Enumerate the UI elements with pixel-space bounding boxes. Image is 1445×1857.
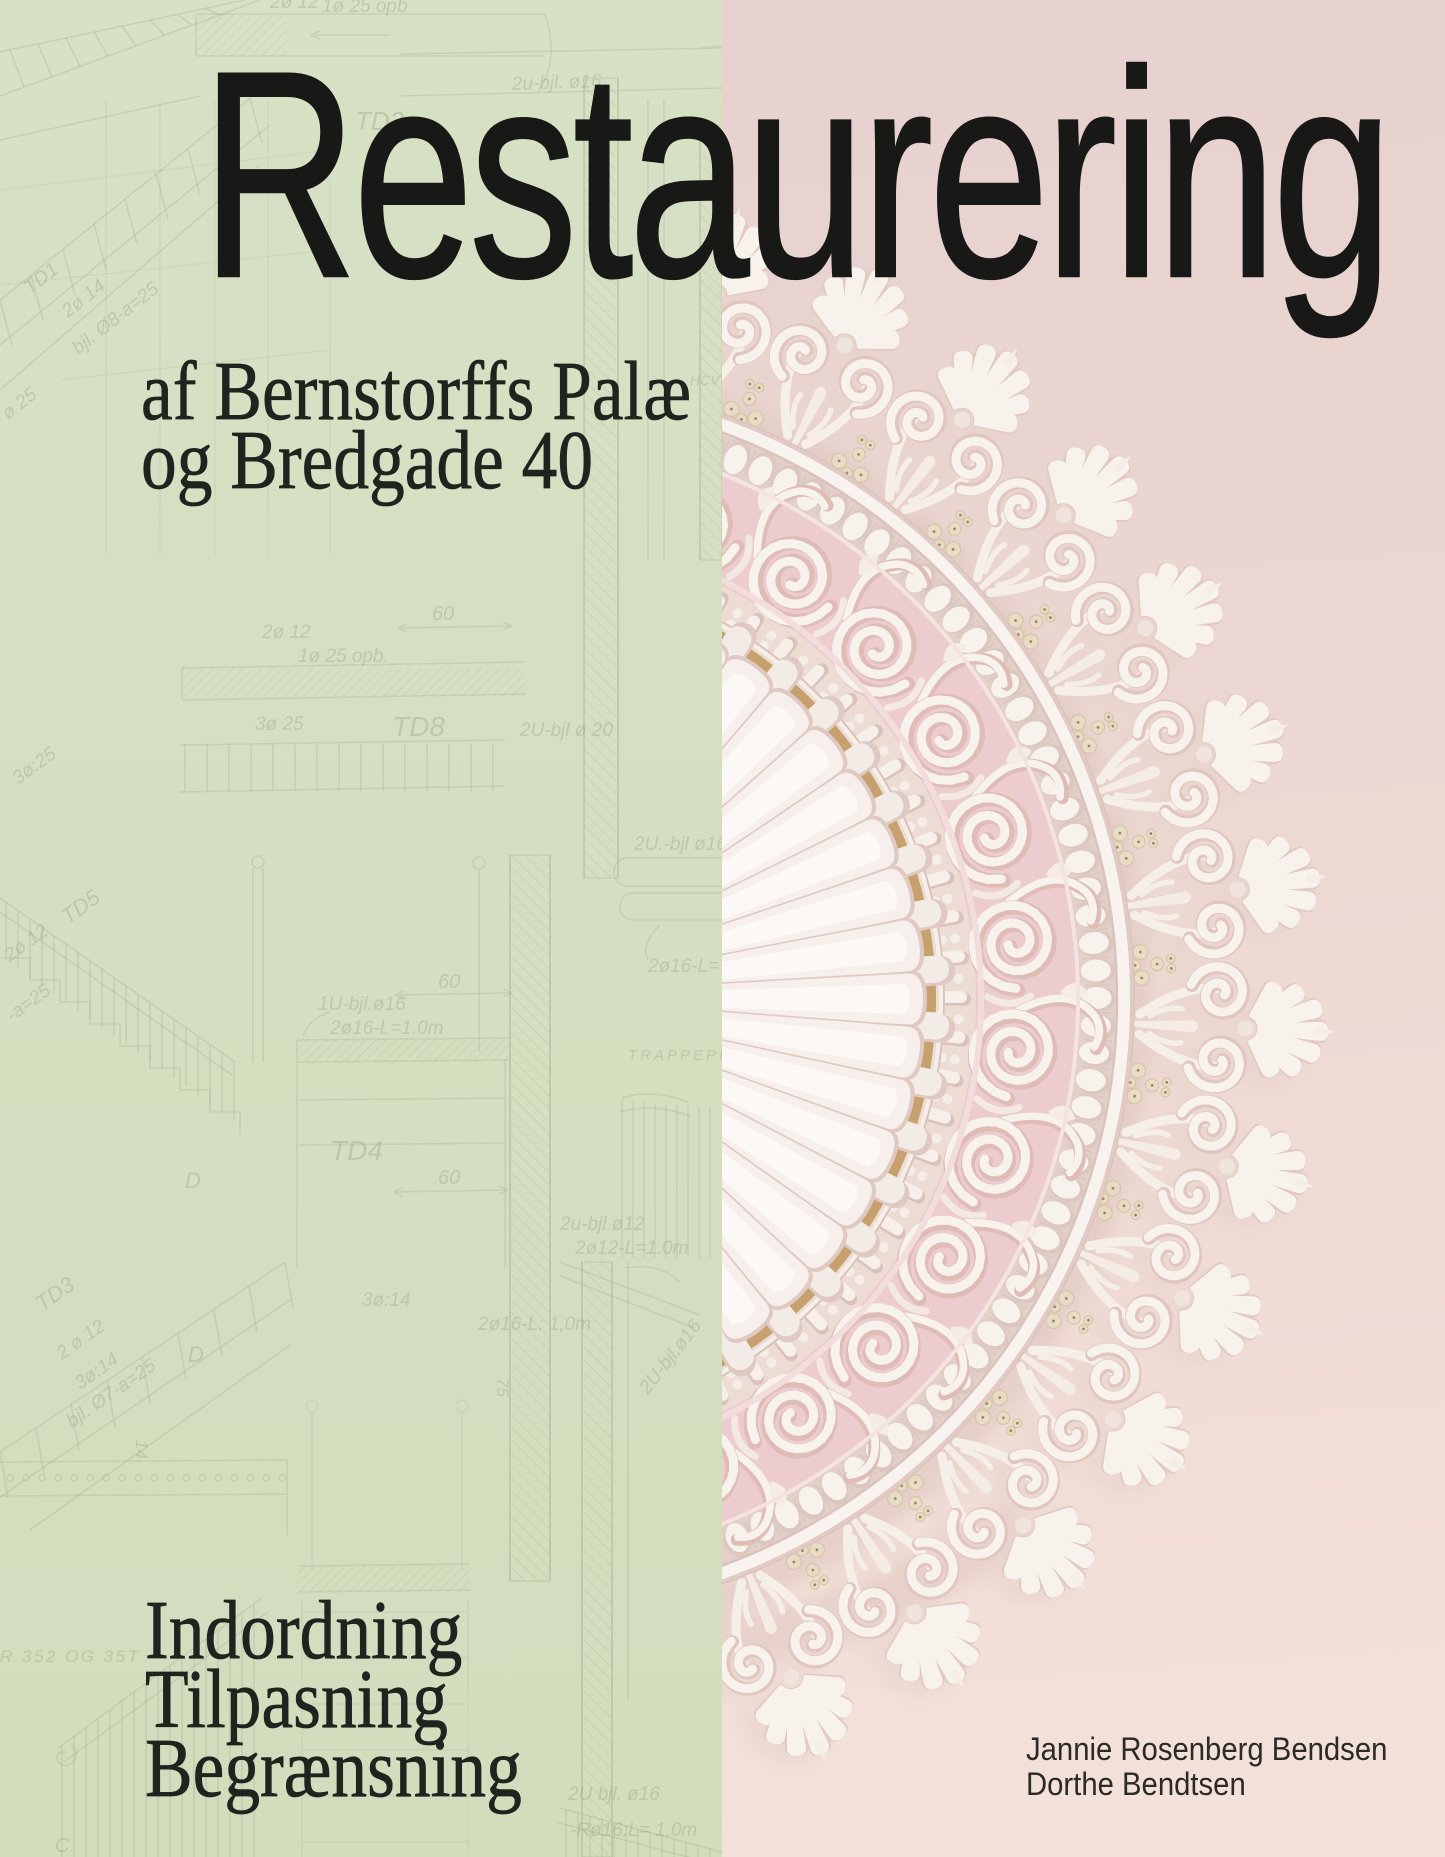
- svg-text:60: 60: [432, 603, 454, 625]
- svg-text:2U bjl. ø16: 2U bjl. ø16: [567, 1784, 660, 1805]
- svg-text:TD4: TD4: [330, 1135, 383, 1166]
- svg-text:1U-bjl.ø16: 1U-bjl.ø16: [318, 994, 406, 1015]
- svg-text:14: 14: [132, 1440, 151, 1459]
- svg-text:-Rø16:L= 1,0m: -Rø16:L= 1,0m: [570, 1820, 697, 1841]
- svg-text:HCV: HCV: [690, 372, 721, 388]
- svg-text:D: D: [185, 1168, 201, 1193]
- svg-text:2ø16-L: 1,0m: 2ø16-L: 1,0m: [477, 1314, 591, 1335]
- svg-text:3ø 25: 3ø 25: [255, 714, 304, 735]
- svg-text:2ø 12: 2ø 12: [261, 622, 311, 643]
- svg-text:60: 60: [438, 971, 460, 993]
- svg-text:3ø:25: 3ø:25: [9, 743, 61, 789]
- svg-text:TD8: TD8: [392, 711, 445, 742]
- svg-text:C: C: [55, 1835, 70, 1857]
- svg-text:TRAPPEPE: TRAPPEPE: [628, 1047, 722, 1064]
- svg-text:ø 25: ø 25: [0, 384, 41, 424]
- svg-text:2ø12-L=1.0m: 2ø12-L=1.0m: [574, 1238, 689, 1259]
- svg-text:2U.-bjl ø16: 2U.-bjl ø16: [633, 834, 722, 855]
- svg-text:1ø 25 opb.: 1ø 25 opb.: [298, 646, 389, 667]
- svg-text:TD3: TD3: [31, 1271, 80, 1316]
- svg-text:-a=25: -a=25: [3, 980, 55, 1026]
- svg-text:D: D: [188, 1342, 204, 1367]
- svg-text:2u-bjl.ø12: 2u-bjl.ø12: [559, 1214, 645, 1235]
- svg-text:2U-bjl.ø16: 2U-bjl.ø16: [635, 1316, 706, 1399]
- svg-text:R 352 OG 35T: R 352 OG 35T: [0, 1647, 141, 1666]
- svg-text:TD5: TD5: [56, 884, 105, 929]
- svg-text:2ø16-L=: 2ø16-L=: [647, 956, 719, 977]
- svg-text:60: 60: [438, 1167, 460, 1189]
- svg-text:2ø16-L=1.0m: 2ø16-L=1.0m: [329, 1018, 444, 1039]
- svg-text:TD1: TD1: [20, 258, 63, 299]
- svg-text:75: 75: [493, 1378, 512, 1397]
- svg-text:2U-bjl ø 20: 2U-bjl ø 20: [519, 720, 613, 741]
- svg-text:3ø:14: 3ø:14: [362, 1290, 411, 1311]
